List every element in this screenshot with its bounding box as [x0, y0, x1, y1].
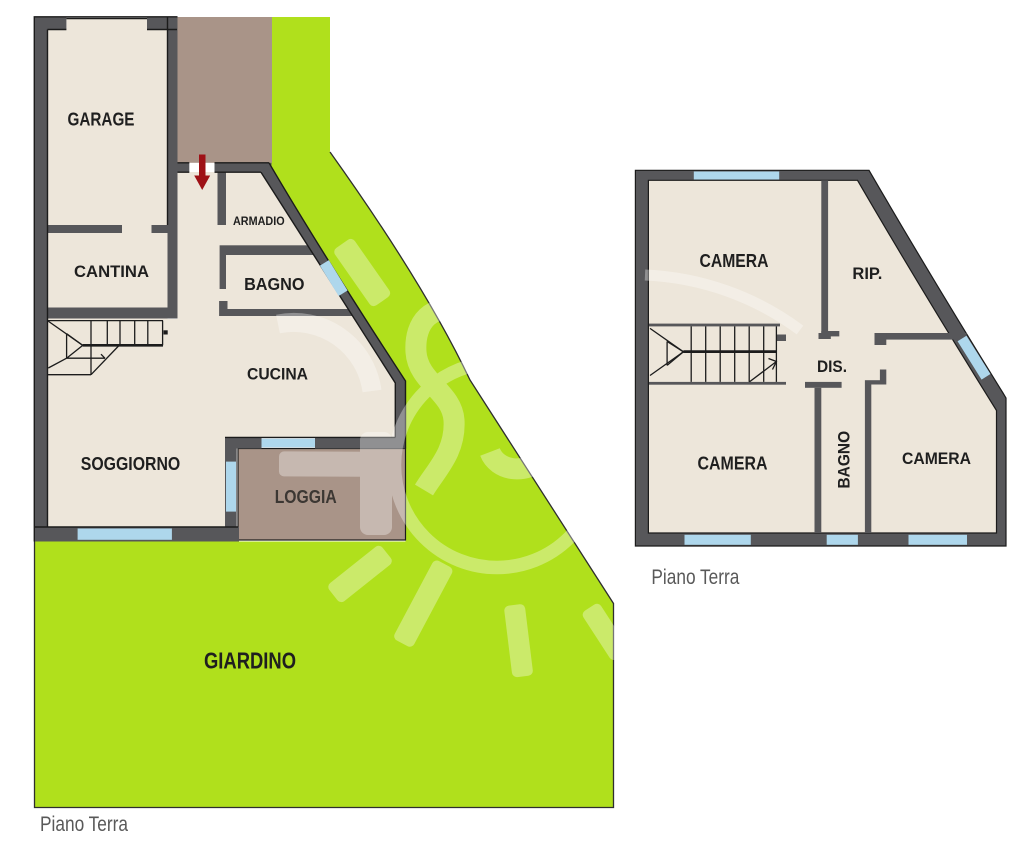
- svg-text:Piano Terra: Piano Terra: [40, 812, 128, 836]
- svg-text:ARMADIO: ARMADIO: [233, 214, 285, 228]
- svg-text:Piano Terra: Piano Terra: [651, 565, 739, 589]
- svg-text:CANTINA: CANTINA: [74, 262, 149, 281]
- svg-text:CAMERA: CAMERA: [698, 454, 768, 474]
- svg-text:SOGGIORNO: SOGGIORNO: [81, 454, 181, 474]
- svg-text:GARAGE: GARAGE: [68, 110, 135, 130]
- svg-text:RIP.: RIP.: [852, 264, 882, 283]
- svg-text:CUCINA: CUCINA: [247, 365, 308, 384]
- svg-text:BAGNO: BAGNO: [834, 431, 853, 489]
- svg-text:GIARDINO: GIARDINO: [204, 648, 296, 674]
- svg-text:LOGGIA: LOGGIA: [275, 487, 337, 507]
- svg-text:CAMERA: CAMERA: [700, 251, 769, 271]
- svg-text:BAGNO: BAGNO: [244, 274, 304, 294]
- svg-text:CAMERA: CAMERA: [902, 449, 971, 468]
- svg-text:DIS.: DIS.: [817, 357, 847, 376]
